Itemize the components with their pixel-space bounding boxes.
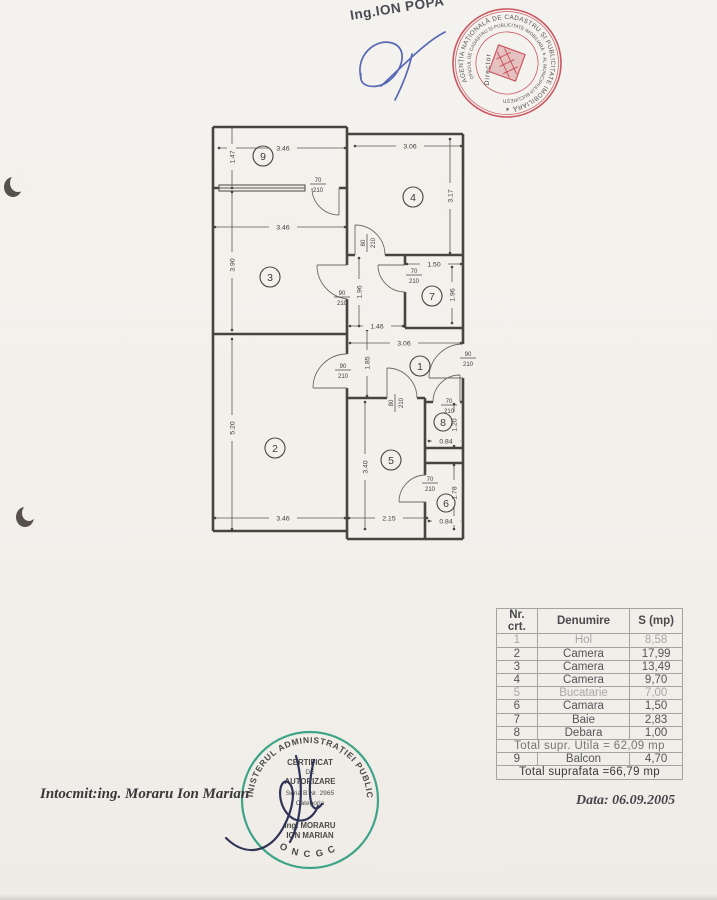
svg-text:210: 210	[313, 188, 324, 194]
dim-corridor-width: 1.46	[363, 321, 391, 331]
svg-text:210: 210	[399, 397, 405, 408]
svg-text:9: 9	[260, 151, 266, 163]
svg-text:70: 70	[427, 477, 434, 483]
col-header-area: S (mp)	[630, 609, 683, 634]
svg-text:70: 70	[315, 178, 322, 184]
door-label-room2: 90210	[335, 364, 351, 380]
svg-text:3.40: 3.40	[363, 460, 370, 473]
svg-text:6: 6	[443, 498, 449, 510]
svg-text:3.17: 3.17	[448, 189, 455, 202]
svg-text:80: 80	[361, 239, 367, 246]
col-header-nr: Nr. crt.	[497, 609, 538, 634]
svg-text:1: 1	[417, 361, 423, 373]
svg-text:210: 210	[409, 279, 420, 285]
svg-text:210: 210	[425, 487, 436, 493]
svg-text:90: 90	[465, 352, 472, 358]
svg-text:210: 210	[338, 374, 349, 380]
dim-room2-height: 5.20	[227, 415, 237, 441]
room-label-3: 3	[260, 267, 280, 287]
svg-text:90: 90	[340, 364, 347, 370]
table-subtotal-row: Total supr. Utila = 62,09 mp	[497, 740, 683, 753]
document-date: Data: 06.09.2005	[576, 793, 675, 809]
svg-text:1.50: 1.50	[427, 262, 440, 269]
svg-text:8: 8	[440, 417, 446, 429]
signature-dark	[220, 740, 380, 870]
dim-room4-width: 3.06	[396, 141, 424, 151]
svg-text:3.06: 3.06	[397, 341, 410, 348]
svg-text:210: 210	[444, 409, 455, 415]
svg-text:3.46: 3.46	[276, 225, 289, 232]
floor-plan: 3.46 1.47 3.06 3.17 3.46 3.90 1.50 1.96 …	[205, 115, 480, 545]
table-total-row: Total suprafata =66,79 mp	[497, 766, 683, 779]
svg-text:7: 7	[429, 291, 435, 303]
dim-room6-height: 1.78	[449, 480, 459, 506]
dim-hall-width: 3.06	[390, 338, 418, 348]
room-label-7: 7	[422, 286, 442, 306]
punch-hole-marks	[0, 160, 60, 540]
svg-text:3: 3	[267, 272, 273, 284]
dim-room8-width: 0.84	[432, 436, 460, 446]
table-row: 5Bucatarie7,00	[497, 687, 683, 700]
dim-room5-width: 2.15	[375, 513, 403, 523]
dim-balcony-height: 1.47	[227, 144, 237, 170]
area-table: Nr. crt. Denumire S (mp) 1Hol8,58 2Camer…	[496, 608, 683, 780]
svg-text:1.85: 1.85	[365, 356, 372, 369]
svg-text:3.06: 3.06	[403, 144, 416, 151]
svg-text:0.84: 0.84	[439, 519, 452, 526]
dim-room6-width: 0.84	[432, 516, 460, 526]
table-row: 2Camera17,99	[497, 647, 683, 660]
signature-blue	[345, 28, 465, 108]
table-row: 1Hol8,58	[497, 634, 683, 647]
table-row: 4Camera9,70	[497, 674, 683, 687]
svg-text:3.90: 3.90	[230, 258, 237, 271]
dim-room4-height: 3.17	[445, 183, 455, 209]
table-row: 7Baie2,83	[497, 713, 683, 726]
svg-text:210: 210	[337, 301, 348, 307]
dim-corridor-height: 1.96	[354, 279, 364, 305]
page-edge-shadow	[0, 894, 717, 900]
table-header-row: Nr. crt. Denumire S (mp)	[497, 609, 683, 634]
dim-room7-height: 1.96	[447, 282, 457, 308]
door-label-room5: 80210	[389, 394, 405, 412]
svg-text:1.96: 1.96	[450, 288, 457, 301]
prepared-by-text: Intocmit:ing. Moraru Ion Marian	[40, 786, 249, 803]
table-row: 8Debara1,00	[497, 726, 683, 739]
svg-text:2.15: 2.15	[382, 516, 395, 523]
dim-room3-width: 3.46	[269, 222, 297, 232]
room-label-5: 5	[381, 450, 401, 470]
room-label-1: 1	[410, 356, 430, 376]
dim-room2-width: 3.46	[269, 513, 297, 523]
door-label-entrance: 90210	[460, 352, 476, 368]
red-round-stamp: AGENȚIA NAȚIONALĂ DE CADASTRU ȘI PUBLICI…	[447, 3, 567, 123]
door-label-balcony: 70210	[310, 178, 326, 194]
col-header-name: Denumire	[537, 609, 630, 634]
svg-text:1.47: 1.47	[230, 150, 237, 163]
svg-text:210: 210	[463, 362, 474, 368]
svg-text:5: 5	[388, 455, 394, 467]
svg-text:90: 90	[339, 291, 346, 297]
dim-room5-height: 3.40	[360, 454, 370, 480]
room-label-9: 9	[253, 146, 273, 166]
svg-text:1.20: 1.20	[452, 418, 459, 431]
svg-text:210: 210	[371, 237, 377, 248]
table-row: 9Balcon4,70	[497, 753, 683, 766]
svg-text:0.84: 0.84	[439, 439, 452, 446]
table-row: 3Camera13,49	[497, 660, 683, 673]
room-label-4: 4	[403, 187, 423, 207]
door-label-room4: 80210	[361, 234, 377, 252]
svg-text:70: 70	[411, 269, 418, 275]
dim-balcony-width: 3.46	[269, 143, 297, 153]
door-label-room7: 70210	[406, 269, 422, 285]
room-label-2: 2	[265, 438, 285, 458]
svg-text:1.96: 1.96	[357, 285, 364, 298]
door-label-room6: 70210	[422, 477, 438, 493]
door-size-labels: 70210 90210 80210 70210 90210 80210 9021…	[310, 178, 476, 493]
svg-text:5.20: 5.20	[230, 421, 237, 434]
dim-room7-width: 1.50	[420, 259, 448, 269]
total-area: Total suprafata =66,79 mp	[497, 766, 683, 779]
table-row: 6Camara1,50	[497, 700, 683, 713]
svg-text:80: 80	[389, 399, 395, 406]
subtotal-useful-area: Total supr. Utila = 62,09 mp	[497, 740, 683, 753]
dim-hall-height: 1.85	[362, 350, 372, 376]
svg-text:1.46: 1.46	[370, 324, 383, 331]
svg-text:3.46: 3.46	[276, 516, 289, 523]
svg-text:4: 4	[410, 192, 416, 204]
walls	[213, 127, 463, 539]
dim-room3-height: 3.90	[227, 252, 237, 278]
scanned-document-page: AGENȚIA NAȚIONALĂ DE CADASTRU ȘI PUBLICI…	[0, 0, 717, 900]
svg-text:70: 70	[446, 399, 453, 405]
dim-room8-height: 1.20	[449, 412, 459, 438]
svg-text:3.46: 3.46	[276, 146, 289, 153]
svg-text:2: 2	[272, 443, 278, 455]
